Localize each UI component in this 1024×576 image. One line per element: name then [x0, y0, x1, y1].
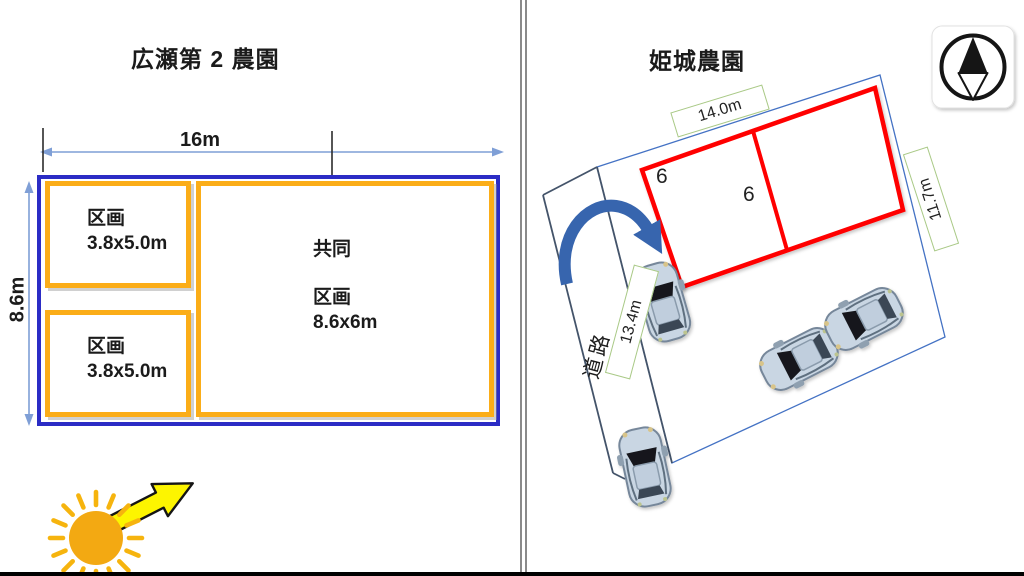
shared-plot-prefix: 共同 [313, 237, 351, 262]
plot-count-left: 6 [656, 165, 668, 189]
left-panel-title: 広瀬第 2 農園 [131, 40, 280, 74]
plot-2-size: 3.8x5.0m [87, 361, 167, 382]
farm-layout-slide: 広瀬第 2 農園 16m 8.6m 区画 3.8x5.0m 区画 3.8x5.0… [0, 0, 1024, 576]
plot-1-name: 区画 [87, 208, 125, 229]
plot-1-size: 3.8x5.0m [87, 233, 167, 254]
plot-1-label: 区画 3.8x5.0m [87, 206, 167, 256]
plot-2-name: 区画 [87, 336, 125, 357]
plot-count-right: 6 [743, 183, 755, 207]
shared-plot-label: 区画 8.6x6m [313, 285, 377, 335]
shared-plot-size: 8.6x6m [313, 312, 377, 333]
himegi-farm-panel: 姫城農園 [527, 0, 1024, 576]
shared-plot-name: 区画 [313, 287, 351, 308]
width-dimension-label: 16m [180, 129, 220, 152]
slide-bottom-border [0, 572, 1024, 576]
plot-2-label: 区画 3.8x5.0m [87, 334, 167, 384]
hirose-farm-panel: 広瀬第 2 農園 16m 8.6m 区画 3.8x5.0m 区画 3.8x5.0… [0, 0, 520, 576]
height-dimension-label: 8.6m [7, 268, 30, 332]
panel-divider [520, 0, 522, 576]
right-panel-title: 姫城農園 [649, 42, 745, 76]
